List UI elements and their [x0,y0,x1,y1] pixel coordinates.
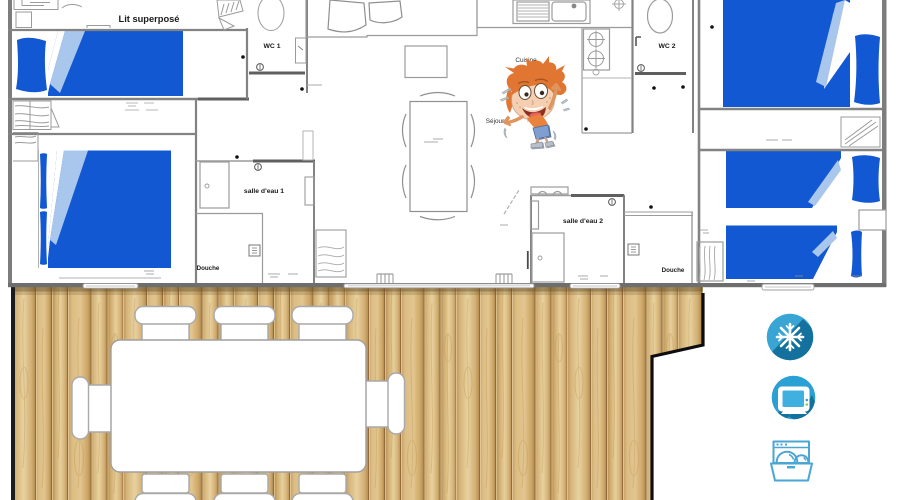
svg-text:Douche: Douche [197,265,220,272]
svg-text:salle d'eau 2: salle d'eau 2 [563,218,603,225]
svg-text:Lit superposé: Lit superposé [119,14,180,24]
svg-text:Séjour: Séjour [486,118,505,125]
svg-text:salle d'eau 1: salle d'eau 1 [244,188,284,195]
svg-text:WC 1: WC 1 [264,43,281,50]
svg-text:Douche: Douche [662,267,685,274]
svg-text:WC 2: WC 2 [659,43,676,50]
